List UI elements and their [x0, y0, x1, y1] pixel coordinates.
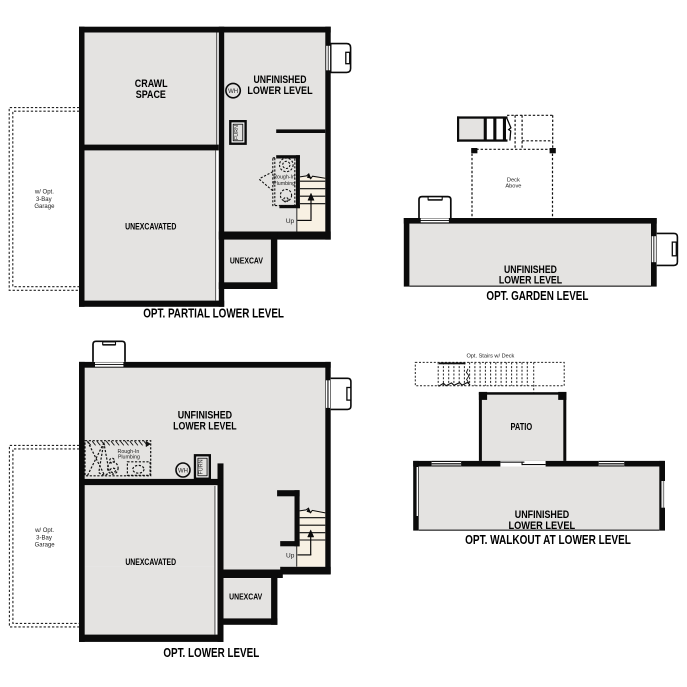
- svg-text:LOWER LEVEL: LOWER LEVEL: [247, 85, 312, 97]
- svg-text:Opt. Stairs w/ Deck: Opt. Stairs w/ Deck: [466, 354, 514, 360]
- svg-text:UNEXCAVATED: UNEXCAVATED: [125, 222, 177, 232]
- svg-text:Garage: Garage: [34, 204, 55, 210]
- svg-text:UNFINISHED: UNFINISHED: [254, 74, 307, 86]
- svg-text:FURN: FURN: [198, 459, 204, 474]
- svg-text:UNEXCAVATED: UNEXCAVATED: [125, 557, 176, 567]
- svg-text:OPT. WALKOUT AT LOWER LEVEL: OPT. WALKOUT AT LOWER LEVEL: [465, 532, 631, 547]
- svg-text:Deck: Deck: [507, 178, 520, 184]
- svg-text:Up: Up: [286, 553, 295, 560]
- svg-text:LOWER LEVEL: LOWER LEVEL: [173, 421, 237, 433]
- svg-text:LOWER LEVEL: LOWER LEVEL: [508, 520, 575, 532]
- svg-text:WH: WH: [228, 89, 238, 95]
- svg-text:Up: Up: [286, 218, 295, 225]
- svg-text:Garage: Garage: [35, 542, 56, 548]
- svg-text:OPT. PARTIAL LOWER LEVEL: OPT. PARTIAL LOWER LEVEL: [143, 306, 284, 321]
- svg-text:UNEXCAV: UNEXCAV: [229, 592, 263, 601]
- svg-text:Plumbing: Plumbing: [118, 455, 140, 461]
- svg-text:OPT. LOWER LEVEL: OPT. LOWER LEVEL: [163, 645, 259, 660]
- svg-text:OPT. GARDEN LEVEL: OPT. GARDEN LEVEL: [486, 288, 588, 303]
- svg-text:w/ Opt.: w/ Opt.: [34, 189, 54, 195]
- svg-text:w/ Opt.: w/ Opt.: [34, 528, 54, 534]
- svg-text:UNEXCAV: UNEXCAV: [230, 256, 264, 265]
- svg-text:3-Bay: 3-Bay: [36, 536, 52, 542]
- svg-text:PATIO: PATIO: [510, 421, 532, 433]
- svg-text:Plumbing: Plumbing: [273, 181, 295, 187]
- svg-text:WH: WH: [178, 468, 188, 474]
- svg-text:Above: Above: [505, 184, 521, 190]
- svg-text:SPACE: SPACE: [136, 89, 166, 101]
- svg-text:LOWER LEVEL: LOWER LEVEL: [499, 274, 562, 286]
- svg-text:FURN: FURN: [234, 125, 240, 140]
- svg-text:Rough-In: Rough-In: [273, 175, 295, 181]
- svg-text:3-Bay: 3-Bay: [36, 197, 52, 203]
